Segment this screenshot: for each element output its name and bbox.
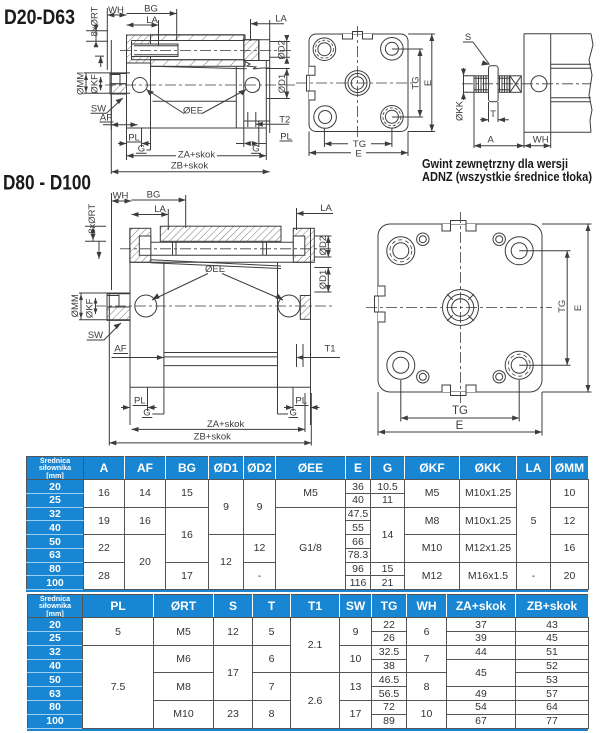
svg-text:ØKK: ØKK [455,100,466,121]
svg-text:LA: LA [320,203,332,214]
svg-text:ØMM: ØMM [76,72,87,95]
svg-text:PL: PL [134,396,146,407]
svg-text:SW: SW [88,330,103,341]
svg-text:LA: LA [154,204,166,215]
svg-text:ØD2: ØD2 [276,40,287,60]
svg-text:ØMM: ØMM [70,294,81,317]
svg-text:T1: T1 [324,344,335,355]
svg-text:ØKF: ØKF [85,298,96,318]
svg-text:8xØRT: 8xØRT [90,6,101,36]
svg-text:E: E [423,80,434,86]
svg-text:BG: BG [147,190,161,201]
svg-text:D20-D63: D20-D63 [4,6,75,29]
svg-text:A: A [488,135,495,146]
svg-text:LA: LA [275,14,287,25]
svg-text:LA: LA [146,15,158,26]
svg-text:WH: WH [533,135,549,146]
svg-text:G: G [143,408,150,419]
svg-text:TG: TG [410,76,421,89]
svg-text:ZB+skok: ZB+skok [171,160,208,171]
svg-text:S: S [465,32,471,43]
svg-text:E: E [456,420,464,432]
svg-text:ZA+skok: ZA+skok [207,419,244,430]
svg-text:ADNZ (wszystkie średnice tłoka: ADNZ (wszystkie średnice tłoka) [422,169,592,184]
svg-text:E: E [355,148,361,159]
svg-text:TG: TG [452,405,468,417]
svg-text:WH: WH [108,5,124,16]
svg-text:ZA+skok: ZA+skok [178,149,215,160]
svg-text:D80 - D100: D80 - D100 [3,172,91,195]
svg-text:ØKF: ØKF [90,74,101,94]
svg-text:ØD1: ØD1 [318,270,329,290]
svg-text:ØEE: ØEE [183,106,203,117]
svg-text:ØD2: ØD2 [318,236,329,256]
svg-text:T: T [490,109,496,120]
svg-text:BG: BG [144,4,158,15]
svg-text:ØD1: ØD1 [277,74,288,94]
svg-text:AF: AF [114,344,126,355]
svg-text:WH: WH [113,191,129,202]
svg-text:E: E [573,305,584,311]
svg-text:TG: TG [557,300,568,313]
svg-text:ØEE: ØEE [205,264,225,275]
svg-text:ZB+skok: ZB+skok [194,432,231,443]
svg-text:G: G [290,408,297,419]
